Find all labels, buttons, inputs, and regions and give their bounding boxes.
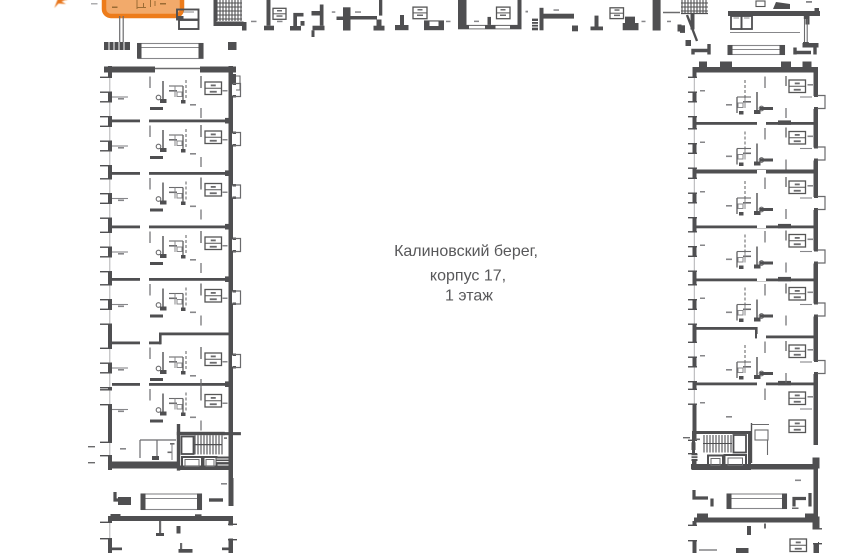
svg-text:корпус 17,: корпус 17, — [430, 268, 506, 285]
svg-text:Калиновский берег,: Калиновский берег, — [394, 243, 538, 260]
svg-text:1 этаж: 1 этаж — [445, 288, 493, 305]
